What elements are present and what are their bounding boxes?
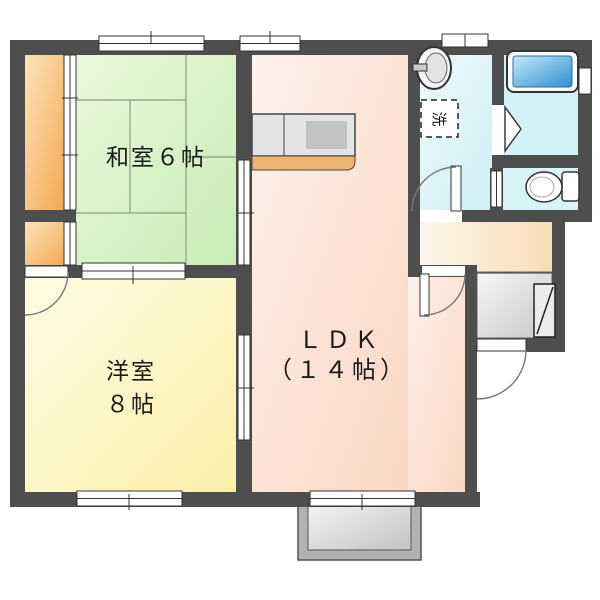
toilet [526, 172, 579, 202]
wall-bath-washroom [492, 55, 504, 105]
wall-closet-divider [25, 210, 76, 222]
room-youshitsu-floor [25, 278, 236, 492]
wall-left [10, 40, 25, 507]
label-youshitsu-line2: ８帖 [106, 392, 156, 418]
window-washitsu-top [99, 31, 204, 51]
wall-bath-bottom [492, 155, 592, 168]
washbasin-tap [413, 64, 427, 71]
closet-top-sliding-doors [62, 55, 78, 210]
balcony [298, 503, 421, 560]
wall-genkan-bottom-stub [526, 338, 565, 352]
window-washroom-top [442, 34, 488, 47]
label-ldk-line2: （１４帖） [268, 356, 408, 384]
label-youshitsu-line1: 洋室 [106, 359, 156, 385]
label-ldk-line1: ＬＤＫ [298, 326, 382, 354]
wall-top [10, 40, 592, 55]
window-youshitsu-bottom [77, 491, 182, 510]
closet-bottom-front [64, 222, 76, 265]
wall-ldk-ext-right [465, 272, 477, 492]
window-ldk-top [240, 31, 300, 51]
door-entrance [477, 339, 526, 399]
kitchen-sink [306, 121, 347, 149]
floor-plan-page: 洗 和室６帖 洋室 ８帖 ＬＤＫ （１４帖） [0, 0, 600, 600]
wall-right-upper [578, 40, 592, 222]
kitchen-counter [252, 114, 355, 170]
kitchen-counter-edge [252, 156, 355, 170]
closet-bottom-floor [25, 222, 67, 266]
opening-hall-washroom [420, 210, 462, 222]
washing-machine-space: 洗 [421, 100, 458, 137]
room-ldk-extension-floor [408, 272, 465, 492]
opening-washroom-bath [492, 105, 504, 155]
label-washitsu: 和室６帖 [106, 145, 206, 171]
window-bathroom-right [579, 68, 591, 94]
balcony-floor [308, 503, 411, 550]
closet-top-floor [25, 55, 67, 210]
door-toilet [491, 171, 502, 207]
floor-plan-drawing: 洗 和室６帖 洋室 ８帖 ＬＤＫ （１４帖） [0, 0, 600, 600]
bathtub [507, 51, 578, 92]
laundry-label: 洗 [430, 111, 448, 126]
shoe-cabinet [534, 284, 555, 337]
hallway-floor [420, 222, 552, 272]
wall-washroom-left [408, 55, 420, 267]
